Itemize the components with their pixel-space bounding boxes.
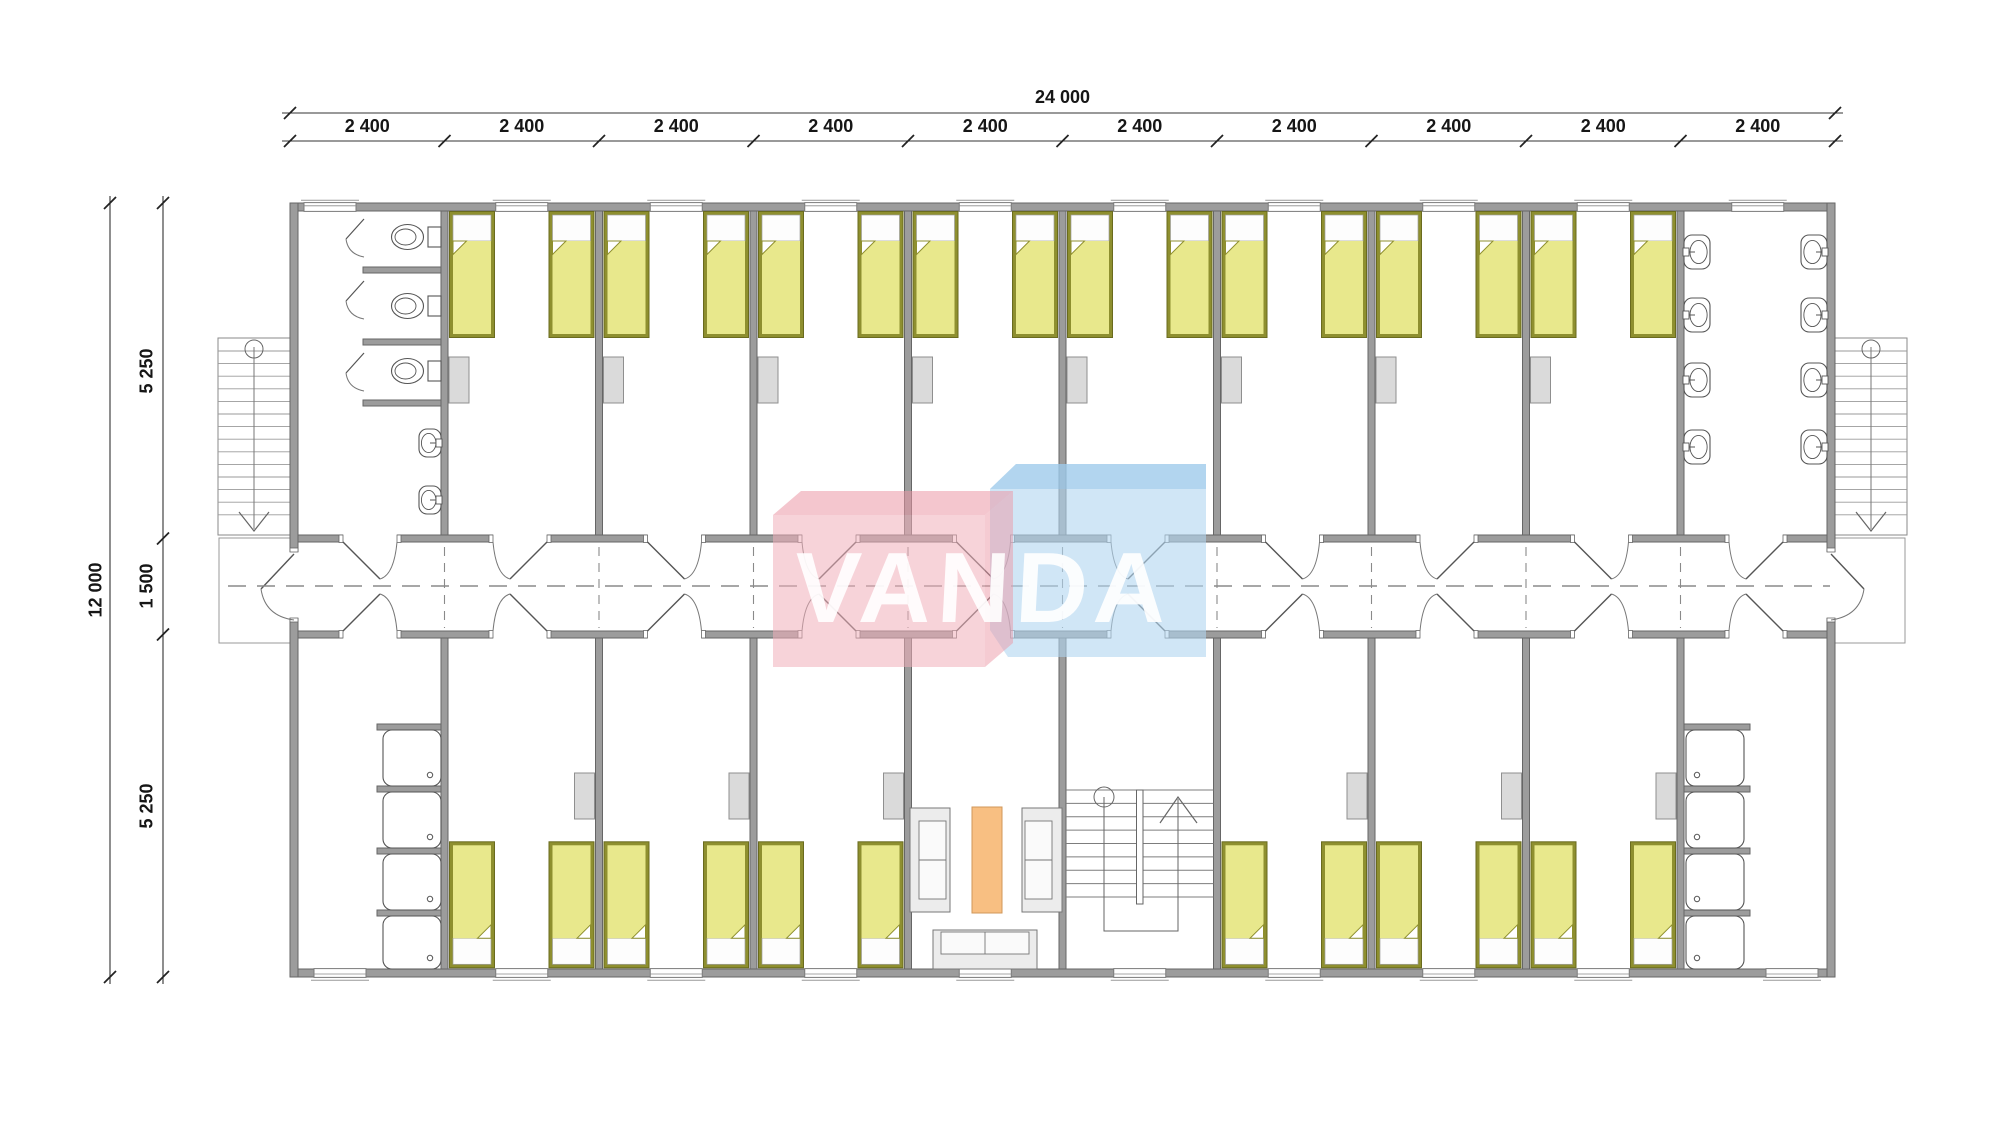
window [493, 969, 551, 981]
dim-top-seg-3: 2 400 [599, 116, 754, 137]
bed [1167, 212, 1212, 338]
window [301, 200, 359, 211]
dim-left-seg-1: 5 250 [137, 348, 158, 393]
window [802, 200, 860, 211]
window [1763, 969, 1821, 981]
washbasin [1801, 430, 1828, 464]
window [802, 969, 860, 981]
bed [450, 842, 495, 968]
door [1571, 534, 1633, 579]
bed [759, 842, 804, 968]
shower-tray [383, 854, 441, 910]
dim-top-seg-1: 2 400 [290, 116, 445, 137]
lounge-furniture [910, 807, 1062, 969]
bed [1476, 212, 1521, 338]
dim-top-seg-2: 2 400 [445, 116, 600, 137]
locker [884, 773, 904, 819]
washbasin [1801, 363, 1828, 397]
dim-top-total: 24 000 [290, 87, 1835, 108]
locker [913, 357, 933, 403]
bed [1013, 212, 1058, 338]
window [1574, 969, 1632, 981]
bed [704, 212, 749, 338]
bed [1631, 212, 1676, 338]
shower-tray [1686, 792, 1744, 848]
door [1262, 534, 1324, 579]
window [1574, 200, 1632, 211]
window [956, 200, 1014, 211]
locker [1656, 773, 1676, 819]
bed [1322, 212, 1367, 338]
dim-top-seg-10: 2 400 [1681, 116, 1836, 137]
dim-top-seg-9: 2 400 [1526, 116, 1681, 137]
bed [1322, 842, 1367, 968]
bed [858, 842, 903, 968]
shower-tray [383, 730, 441, 786]
floor-plan-sheet: 24 000 12 000 5 250 1 500 5 250 2 4002 4… [0, 0, 2000, 1131]
shower-tray [383, 792, 441, 848]
bed [1531, 842, 1576, 968]
washbasin [419, 429, 442, 457]
window [956, 969, 1014, 981]
locker [1347, 773, 1367, 819]
bed [1222, 212, 1267, 338]
washbasin [1683, 235, 1710, 269]
door [1262, 594, 1324, 639]
window [311, 969, 369, 981]
stall-door [346, 219, 364, 257]
washbasin [1801, 235, 1828, 269]
washbasin [1683, 298, 1710, 332]
window [493, 200, 551, 211]
toilet [392, 359, 442, 384]
door [489, 594, 551, 639]
stall-door [346, 353, 364, 391]
shower-tray [1686, 854, 1744, 910]
bed [1476, 842, 1521, 968]
locker [604, 357, 624, 403]
window [1265, 969, 1323, 981]
door [644, 594, 706, 639]
window [647, 200, 705, 211]
window [1111, 969, 1169, 981]
locker [1376, 357, 1396, 403]
window [1729, 200, 1787, 211]
bed [450, 212, 495, 338]
washbasin [1801, 298, 1828, 332]
door [339, 534, 401, 579]
locker [1502, 773, 1522, 819]
dim-top-seg-7: 2 400 [1217, 116, 1372, 137]
dim-left-seg-3: 5 250 [137, 783, 158, 828]
shower-tray [1686, 730, 1744, 786]
bed [704, 842, 749, 968]
bed [1631, 842, 1676, 968]
locker [1222, 357, 1242, 403]
door [1725, 534, 1787, 579]
bed [913, 212, 958, 338]
exterior-stair-left [218, 338, 290, 643]
locker [729, 773, 749, 819]
door [1571, 594, 1633, 639]
stall-door [346, 281, 364, 319]
locker [1531, 357, 1551, 403]
bed [1068, 212, 1113, 338]
locker [758, 357, 778, 403]
dim-top-seg-4: 2 400 [754, 116, 909, 137]
shower-tray [383, 916, 441, 969]
bed [604, 212, 649, 338]
bed [549, 842, 594, 968]
dim-left-total: 12 000 [86, 562, 107, 617]
window [1420, 200, 1478, 211]
bed [1377, 212, 1422, 338]
door [644, 534, 706, 579]
window [1111, 200, 1169, 211]
bed [1222, 842, 1267, 968]
door [1725, 594, 1787, 639]
exterior-stair-right [1835, 338, 1907, 643]
internal-stair [1066, 787, 1214, 931]
locker [1067, 357, 1087, 403]
door [339, 594, 401, 639]
door [1416, 594, 1478, 639]
dim-left-seg-2: 1 500 [137, 563, 158, 608]
toilet [392, 225, 442, 250]
washbasin [419, 486, 442, 514]
locker [575, 773, 595, 819]
toilet [392, 294, 442, 319]
window [647, 969, 705, 981]
bed [759, 212, 804, 338]
door [489, 534, 551, 579]
dim-top-seg-8: 2 400 [1372, 116, 1527, 137]
washbasin [1683, 430, 1710, 464]
bed [604, 842, 649, 968]
dim-top-seg-6: 2 400 [1063, 116, 1218, 137]
window [1265, 200, 1323, 211]
bed [549, 212, 594, 338]
door [1416, 534, 1478, 579]
washbasin [1683, 363, 1710, 397]
bed [858, 212, 903, 338]
vanda-watermark-text: VANDA [791, 536, 1207, 646]
dim-top-seg-5: 2 400 [908, 116, 1063, 137]
locker [449, 357, 469, 403]
bed [1531, 212, 1576, 338]
bed [1377, 842, 1422, 968]
window [1420, 969, 1478, 981]
shower-tray [1686, 916, 1744, 969]
